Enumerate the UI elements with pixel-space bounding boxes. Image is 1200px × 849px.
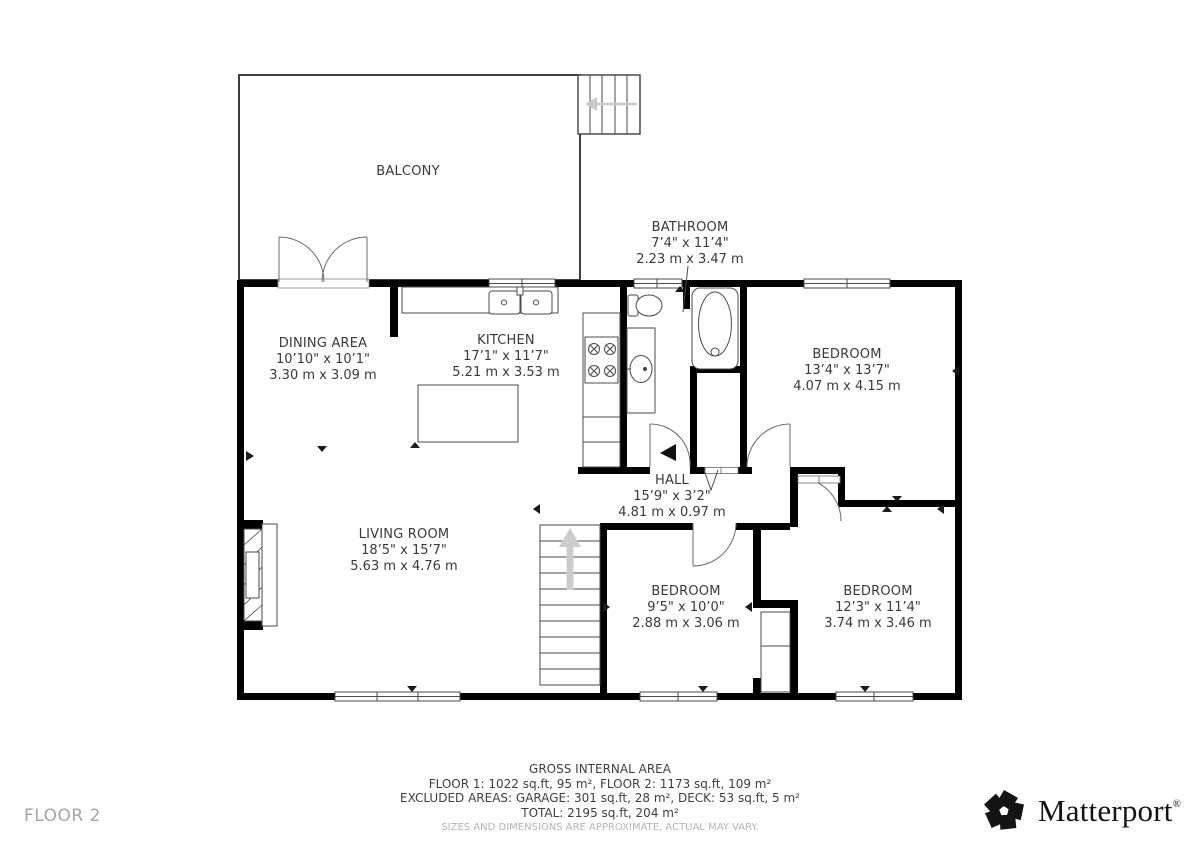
- room-label-bathroom: BATHROOM 7’4" x 11’4" 2.23 m x 3.47 m: [636, 220, 743, 268]
- bathroom-door-leaf: [660, 444, 676, 461]
- balcony-door-opening: [278, 237, 369, 288]
- floor-label: FLOOR 2: [24, 806, 101, 826]
- room-label-dining: DINING AREA 10’10" x 10’1" 3.30 m x 3.09…: [269, 336, 376, 384]
- room-label-hall: HALL 15’9" x 3’2" 4.81 m x 0.97 m: [618, 473, 725, 521]
- matterport-brand: Matterport®: [979, 785, 1181, 837]
- room-label-kitchen: KITCHEN 17’1" x 11’7" 5.21 m x 3.53 m: [452, 333, 559, 381]
- bathroom-fixtures: [627, 288, 738, 413]
- floorplan-page: BALCONY BATHROOM 7’4" x 11’4" 2.23 m x 3…: [0, 0, 1200, 849]
- registered-mark: ®: [1173, 798, 1182, 810]
- kitchen-island: [418, 385, 518, 442]
- room-label-bedroom-ne: BEDROOM 13’4" x 13’7" 4.07 m x 4.15 m: [793, 347, 900, 395]
- bathroom-vanity: [627, 328, 655, 413]
- room-label-living: LIVING ROOM 18’5" x 15’7" 5.63 m x 4.76 …: [350, 527, 457, 575]
- bedroom-closet: [761, 612, 790, 692]
- room-label-bedroom-s: BEDROOM 9’5" x 10’0" 2.88 m x 3.06 m: [632, 584, 739, 632]
- toilet: [628, 295, 662, 316]
- bathtub: [692, 288, 738, 369]
- floor-plan-svg: [0, 0, 1200, 849]
- kitchen-sink: [489, 291, 520, 314]
- room-label-balcony: BALCONY: [376, 164, 439, 180]
- main-stairs: [540, 525, 600, 685]
- room-label-bedroom-se: BEDROOM 12’3" x 11’4" 3.74 m x 3.46 m: [824, 584, 931, 632]
- gross-internal-area-title: GROSS INTERNAL AREA: [0, 762, 1200, 777]
- matterport-logo-icon: [979, 785, 1029, 837]
- se-bedroom-closet-door: [798, 476, 840, 483]
- brand-wordmark: Matterport®: [1038, 793, 1181, 829]
- balcony-stairs: [578, 75, 640, 134]
